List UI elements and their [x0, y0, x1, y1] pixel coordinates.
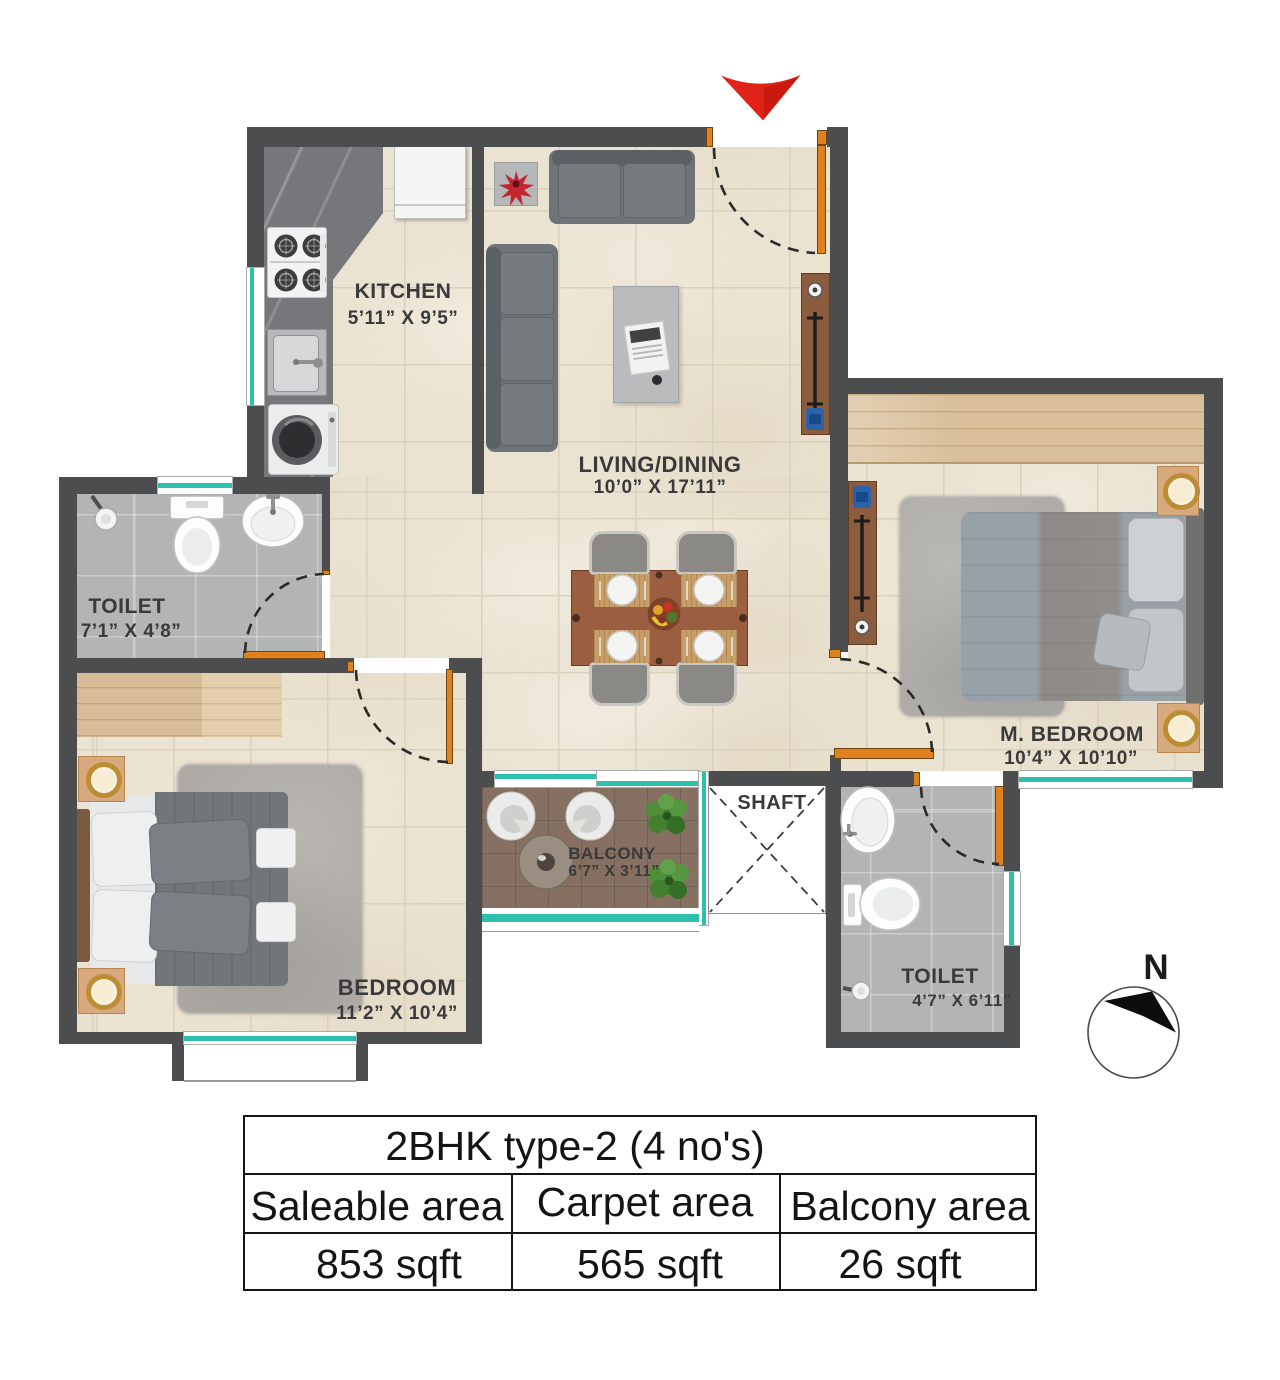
svg-text:N: N [1143, 948, 1168, 987]
